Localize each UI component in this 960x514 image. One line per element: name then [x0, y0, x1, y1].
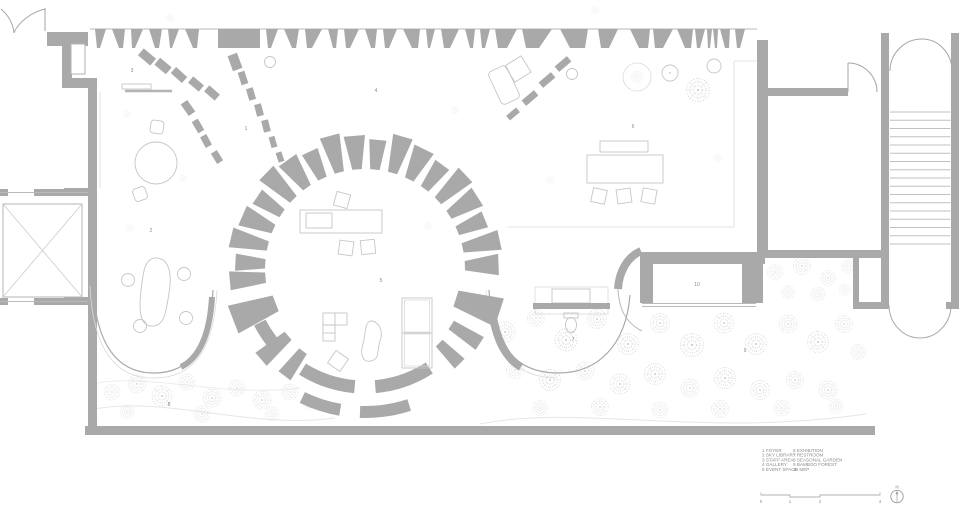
column-wedge	[218, 29, 260, 48]
cluster-wedge	[228, 53, 243, 71]
cluster-wedge	[246, 87, 256, 100]
plant-puff	[821, 271, 836, 286]
ring-column-wedge	[235, 254, 266, 271]
cluster-wedge	[522, 90, 539, 106]
plant-puff	[808, 332, 829, 353]
bean-ottoman	[362, 321, 382, 361]
plant-puff	[645, 364, 666, 385]
cushion	[328, 351, 349, 372]
toilet-bowl	[566, 318, 577, 333]
entry-door-arc	[1, 9, 14, 33]
room-label-restroom: 7	[572, 337, 575, 343]
room-label-sky-library: 2	[150, 228, 153, 234]
plant-puff	[746, 334, 767, 355]
scale-bar-line	[761, 495, 880, 497]
elevator-shaft	[3, 204, 82, 297]
plant-puff	[714, 154, 722, 162]
column-wedge	[344, 29, 359, 48]
plant-puff	[591, 6, 599, 14]
column-wedge	[131, 29, 143, 48]
column-wedge	[495, 29, 517, 48]
scale-label: 4	[879, 499, 882, 504]
column-wedge	[426, 29, 435, 48]
plant-puff	[203, 389, 221, 407]
cluster-wedge	[204, 85, 220, 100]
door-jamb	[946, 302, 959, 309]
plant-puff	[265, 407, 279, 421]
stair-left-wall	[881, 33, 889, 309]
north-arrow: N	[891, 485, 903, 503]
ring-column-wedge	[344, 135, 365, 170]
column-wedge	[95, 29, 106, 48]
column-wedge	[522, 29, 552, 48]
mep-wall-right	[742, 264, 763, 303]
ring-column-wedge	[436, 340, 465, 369]
bottom-right-door-arc	[889, 305, 920, 338]
plant-puff	[836, 316, 853, 333]
plant-puff	[751, 381, 770, 400]
cluster-wedge	[506, 108, 520, 121]
terrain-line	[92, 381, 300, 391]
plant-puff	[123, 110, 131, 118]
column-wedge	[403, 29, 420, 48]
room-label-exhibition: 6	[632, 124, 635, 130]
column-wedge	[185, 29, 199, 48]
floor-plan-canvas: 1 2 3 4 5 6 7 8 9 10 1 FOYER 2 SKY LIBRA…	[0, 0, 960, 514]
library-curve-offset	[90, 286, 217, 378]
plant-puff	[618, 334, 639, 355]
small-wall	[853, 302, 889, 309]
column-wedge	[560, 29, 588, 48]
column-wedge	[707, 29, 712, 48]
bench	[505, 56, 531, 82]
column-wedge	[735, 29, 745, 48]
room-label-seasonal-garden: 8	[168, 402, 171, 408]
plant-puff	[787, 372, 804, 389]
floor-plan-page: 1 2 3 4 5 6 7 8 9 10 1 FOYER 2 SKY LIBRA…	[0, 0, 960, 514]
legend: 1 FOYER 2 SKY LIBRARY 3 STAFF AREA 4 GAL…	[762, 448, 842, 472]
cluster-wedge	[181, 100, 196, 116]
room-label-staff-area: 3	[131, 68, 134, 74]
column-wedge	[598, 29, 618, 48]
column-wedge	[653, 29, 673, 48]
plant-puff	[179, 174, 187, 182]
chair	[641, 188, 657, 204]
cabinet-inset	[405, 334, 430, 366]
plant-puff	[851, 345, 866, 360]
chair	[180, 312, 193, 325]
event-space-ring	[228, 133, 504, 412]
column-wedge	[720, 29, 730, 48]
ring-column-wedge	[369, 139, 386, 170]
room-number-labels: 1 2 3 4 5 6 7 8 9 10	[131, 68, 747, 408]
curved-walls	[90, 251, 642, 378]
plant-puff	[651, 314, 670, 333]
cluster-wedge	[138, 48, 156, 65]
column-wedge	[713, 29, 718, 48]
exhibit-table	[587, 155, 663, 183]
ring-column-wedge	[449, 321, 484, 350]
plant-puff	[842, 260, 855, 273]
room-label-event-space: 5	[380, 278, 383, 284]
plant-puff	[229, 380, 245, 396]
column-wedge	[266, 29, 278, 48]
plant-puff	[166, 14, 174, 22]
entry-door-arc	[14, 9, 45, 33]
ring-column-wedge	[229, 271, 266, 290]
room-label-bamboo-forest: 9	[744, 348, 747, 354]
plant-puff	[120, 405, 134, 419]
plant-puff	[104, 384, 120, 400]
table-inset	[306, 213, 332, 228]
column-wedge	[284, 29, 299, 48]
top-right-door-arc	[890, 39, 922, 71]
column-wedge	[630, 29, 650, 48]
column-wedge	[365, 29, 377, 48]
vanity-mirror	[552, 289, 590, 303]
north-label: N	[895, 485, 898, 490]
cushion	[338, 240, 354, 256]
plant-puff	[681, 379, 699, 397]
right-outer-wall	[951, 33, 959, 309]
plant-puff	[715, 368, 736, 389]
chair	[122, 274, 135, 287]
mid-horizontal-wall	[757, 250, 889, 258]
plant-puff	[774, 400, 790, 416]
mep-wall-left	[640, 264, 653, 303]
cluster-wedge	[192, 119, 205, 134]
plant-puff	[819, 381, 837, 399]
plant-center-dot	[669, 72, 671, 74]
plant-puff	[546, 176, 554, 184]
column-wedge	[677, 29, 693, 48]
chair	[616, 188, 632, 204]
legend-item: 10 MEP	[793, 467, 809, 472]
plant-puff	[424, 222, 432, 230]
plant-puff	[194, 406, 210, 422]
scale-label: 1	[789, 499, 792, 504]
plant-puff	[451, 106, 459, 114]
cluster-wedge	[238, 71, 249, 86]
cluster-wedge	[171, 67, 188, 83]
north-needle-tip	[896, 491, 899, 494]
terrain-line	[90, 406, 335, 421]
plant-puff	[712, 401, 729, 418]
organic-table	[140, 258, 170, 326]
cluster-wedge	[154, 58, 171, 75]
shelf	[122, 84, 151, 89]
plant-pot	[707, 59, 721, 73]
cluster-wedge	[261, 119, 271, 132]
plant-puff	[687, 79, 710, 102]
round-table	[135, 142, 177, 184]
exhibit-shelf	[600, 141, 648, 152]
vanity-counter	[533, 303, 610, 309]
plant-puff	[681, 334, 704, 357]
column-wedge	[149, 29, 162, 48]
room-label-mep: 10	[694, 282, 700, 288]
chair	[591, 188, 608, 205]
bottom-wall	[85, 426, 875, 435]
column-wedge	[480, 29, 490, 48]
cluster-wedge	[211, 150, 223, 164]
mep-curve-connector	[618, 251, 641, 289]
chair	[150, 120, 165, 135]
chair	[178, 268, 191, 281]
plant-puff	[794, 258, 811, 275]
bottom-right-door-arc	[920, 305, 951, 338]
plant-puff	[829, 399, 843, 413]
cushion	[360, 239, 375, 254]
scale-bar: 0 1 2 4	[760, 493, 882, 505]
scale-label: 2	[819, 499, 822, 504]
ring-column-wedge	[228, 296, 279, 334]
column-wedge	[695, 29, 705, 48]
room-label-gallery: 4	[375, 88, 378, 94]
column-circle	[265, 57, 276, 68]
chair	[134, 320, 147, 333]
chair	[132, 186, 149, 203]
divider-wall	[757, 40, 768, 251]
office-door-arc	[848, 63, 877, 92]
bench	[487, 64, 520, 105]
mep-wall-top	[640, 252, 765, 264]
cluster-wedge	[188, 76, 204, 91]
ring-arc-wall	[360, 405, 409, 412]
top-column-row	[95, 29, 745, 48]
ring-arc-wall	[303, 369, 355, 387]
cluster-wedge	[269, 136, 278, 148]
column-wedge	[465, 29, 475, 48]
plant-puff	[253, 391, 271, 409]
plant-puff	[610, 374, 630, 394]
ring-column-wedge	[462, 230, 502, 253]
ring-arc-wall	[302, 398, 340, 410]
staircase	[890, 112, 951, 244]
ring-column-wedge	[453, 291, 504, 327]
left-wall	[88, 78, 97, 427]
plant-pot	[567, 69, 578, 80]
column-wedge	[383, 29, 397, 48]
small-wall	[853, 258, 859, 302]
plant-puff	[779, 315, 797, 333]
cluster-wedge	[254, 103, 264, 116]
column-wedge	[112, 29, 125, 48]
plant-puff	[528, 310, 545, 327]
column-wedge	[441, 29, 459, 48]
plant-puff	[592, 399, 609, 416]
cluster-wedge	[276, 151, 285, 162]
cluster-wedge	[200, 134, 212, 148]
plant-puff	[179, 374, 195, 390]
column-wedge	[328, 29, 338, 48]
library-curve-poche	[181, 297, 212, 367]
plant-puff	[768, 265, 783, 280]
ring-column-wedge	[465, 254, 499, 275]
plant-puff	[588, 310, 607, 329]
plant-puff	[126, 224, 134, 232]
plant-puff	[811, 287, 825, 301]
plant-puff	[782, 286, 795, 299]
plant-puff	[533, 401, 548, 416]
cluster-wedge	[539, 72, 556, 88]
column-wedge	[305, 29, 322, 48]
ring-arc-wall	[375, 368, 429, 387]
vestibule-wall	[768, 88, 848, 96]
scale-label: 0	[760, 499, 763, 504]
column-wedge	[168, 29, 179, 48]
top-right-door-arc	[922, 39, 952, 71]
plant-puff	[652, 402, 668, 418]
plant-puff	[632, 72, 643, 83]
ring-arc-wall	[260, 323, 272, 342]
cabinet-inset	[405, 300, 430, 332]
plant-puff	[282, 384, 298, 400]
cushion	[333, 191, 350, 208]
room-label-foyer: 1	[245, 126, 248, 132]
wall-niche	[71, 44, 85, 74]
plant-puff	[714, 313, 734, 333]
plant-puff	[839, 284, 851, 296]
